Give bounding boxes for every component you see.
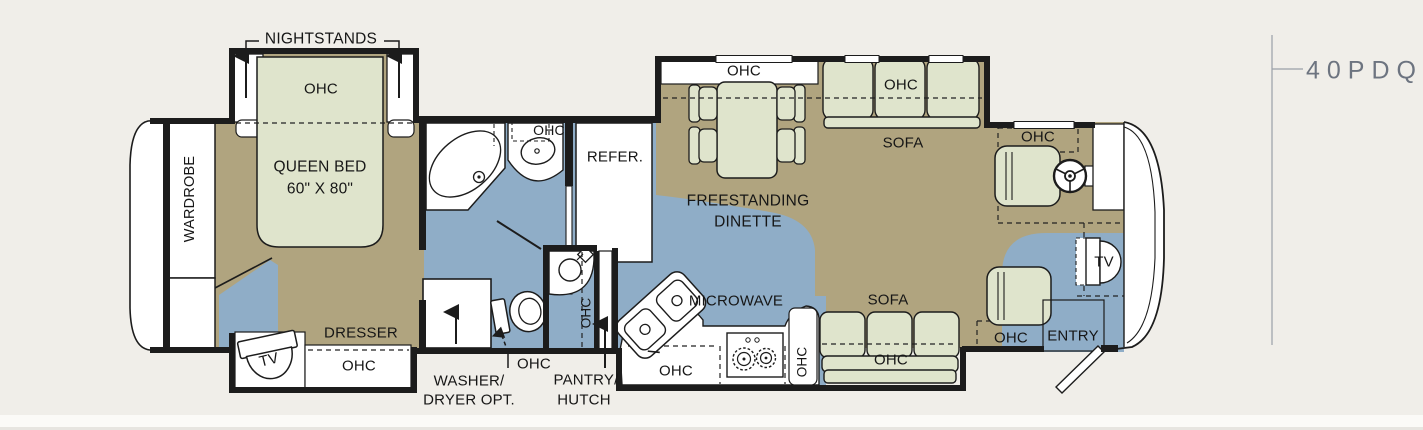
toilet-ohc-label: OHC (517, 357, 551, 372)
refrigerator-label: REFER. (587, 150, 643, 165)
pantry-label-2: HUTCH (557, 393, 611, 408)
vanity-ohc-label: OHC (533, 123, 565, 137)
pantry-label-1: PANTRY/ (553, 373, 618, 388)
washer-label-2: DRYER OPT. (423, 393, 515, 408)
dinette-label-1: FREESTANDING (687, 193, 810, 209)
floorplan-page: NIGHTSTANDS OHC QUEEN BED 60" X 80" WARD… (0, 0, 1423, 430)
dresser-label: DRESSER (324, 326, 398, 341)
passenger-seat (987, 267, 1051, 325)
nightstands-label: NIGHTSTANDS (265, 31, 377, 47)
model-callout: 40PDQ (1306, 57, 1423, 86)
cooktop (727, 333, 783, 377)
sofa-bottom-shape (820, 312, 959, 383)
counter-ohc-label: OHC (795, 347, 809, 378)
nightstand-right (387, 54, 414, 137)
driver-seat (995, 146, 1060, 206)
queen-bed-label-2: 60" X 80" (287, 181, 353, 197)
sofa-top-label: SOFA (883, 136, 924, 151)
dashboard (1093, 124, 1124, 210)
dinette-label-2: DINETTE (714, 214, 782, 230)
bedroom-ohc-label: OHC (304, 82, 338, 97)
refrigerator-box (576, 123, 652, 262)
sofa-top-ohc-label: OHC (884, 78, 918, 93)
washer-label-1: WASHER/ (434, 374, 505, 389)
bottom-white-band (0, 415, 1423, 427)
sofa-bottom-label: SOFA (868, 293, 909, 308)
entry-label: ENTRY (1047, 329, 1099, 344)
tv-right-label: TV (1094, 255, 1114, 270)
dinette-ohc-label: OHC (727, 64, 761, 79)
midbath-ohc-label: OHC (579, 298, 593, 329)
bedroom-slide-ohc-label: OHC (342, 359, 376, 374)
dinette-table (717, 82, 777, 178)
steering-wheel (1054, 160, 1086, 192)
queen-bed-label-1: QUEEN BED (273, 159, 366, 175)
driver-ohc-label: OHC (1021, 130, 1055, 145)
wardrobe-label: WARDROBE (183, 156, 198, 242)
tv-left-label: TV (258, 350, 281, 369)
rear-cap (130, 120, 166, 351)
sofa-bottom-ohc-label: OHC (874, 353, 908, 368)
floorplan-drawing (0, 0, 1423, 430)
passenger-ohc-label: OHC (994, 331, 1028, 346)
kitchen-sink-ohc-label: OHC (659, 364, 693, 379)
microwave-label: MICROWAVE (689, 294, 783, 309)
